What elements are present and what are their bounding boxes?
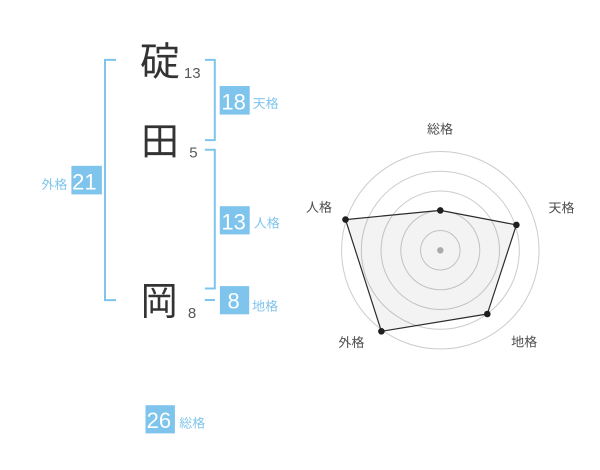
svg-text:21: 21 xyxy=(72,170,96,195)
svg-text:26: 26 xyxy=(147,408,171,433)
svg-text:5: 5 xyxy=(189,145,197,162)
svg-text:18: 18 xyxy=(221,89,245,114)
svg-text:13: 13 xyxy=(221,210,245,235)
svg-text:13: 13 xyxy=(184,65,201,82)
svg-text:8: 8 xyxy=(228,289,240,314)
svg-text:8: 8 xyxy=(188,305,196,322)
